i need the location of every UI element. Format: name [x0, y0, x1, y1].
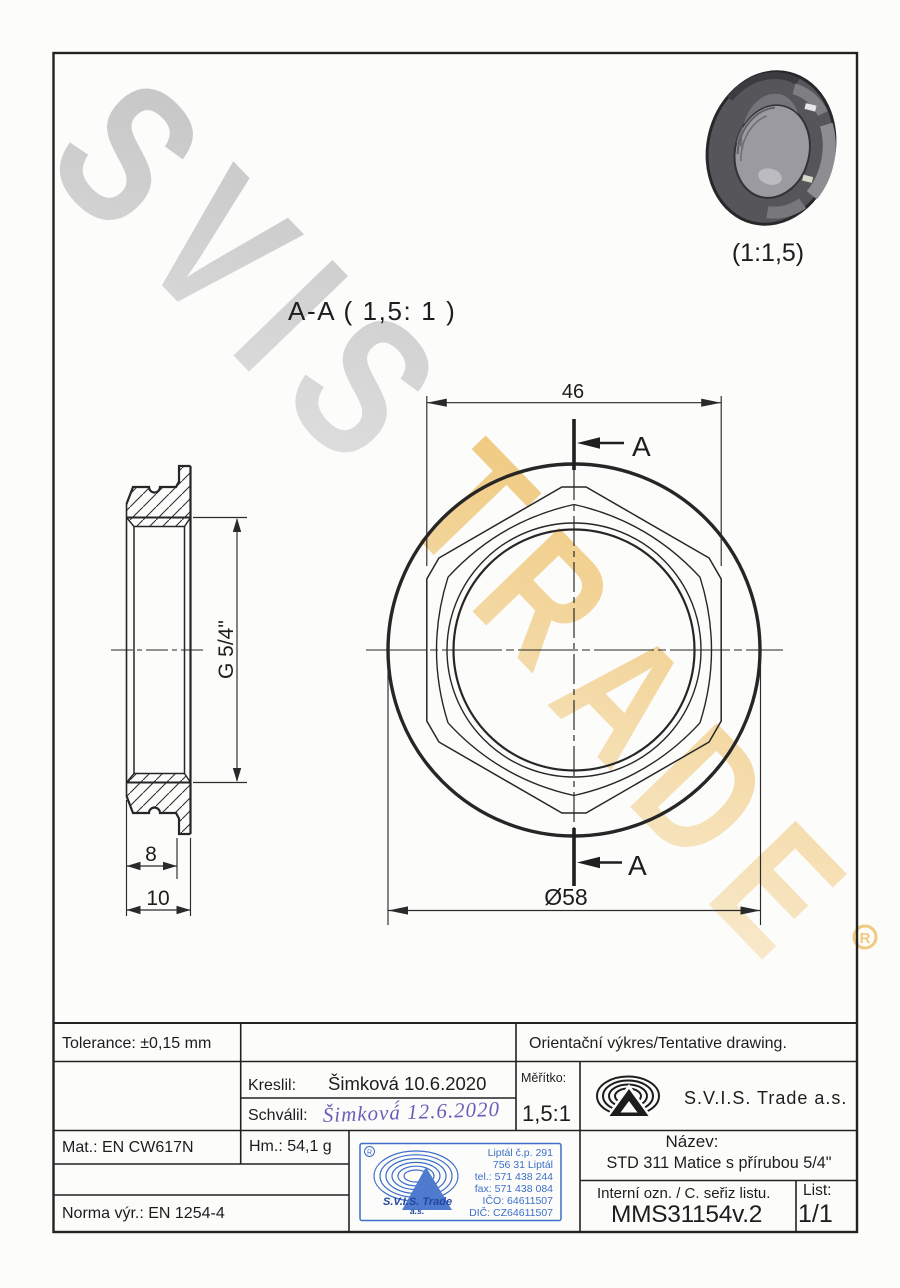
svg-text:Interní ozn. / C. seřiz listu.: Interní ozn. / C. seřiz listu.	[597, 1185, 770, 1202]
svg-text:46: 46	[562, 381, 584, 403]
svg-text:Schválil:: Schválil:	[248, 1107, 308, 1124]
svg-text:1,5:1: 1,5:1	[522, 1101, 571, 1126]
svg-text:fax: 571 438 084: fax: 571 438 084	[475, 1183, 553, 1195]
svg-text:STD 311 Matice s přírubou 5/4": STD 311 Matice s přírubou 5/4"	[607, 1154, 832, 1172]
svg-text:(1:1,5): (1:1,5)	[732, 239, 804, 267]
svg-text:A: A	[628, 850, 647, 881]
svg-text:R: R	[860, 930, 871, 947]
svg-text:DIČ: CZ64611507: DIČ: CZ64611507	[469, 1206, 553, 1219]
svg-text:IČO: 64611507: IČO: 64611507	[483, 1194, 554, 1207]
svg-text:SVIS: SVIS	[10, 34, 497, 526]
svg-text:TRADE: TRADE	[339, 409, 900, 1010]
svg-text:a.s.: a.s.	[410, 1206, 424, 1216]
svg-text:1/1: 1/1	[798, 1200, 833, 1228]
svg-text:8: 8	[145, 843, 157, 866]
svg-text:Liptál č.p. 291: Liptál č.p. 291	[488, 1147, 554, 1159]
svg-text:tel.: 571 438 244: tel.: 571 438 244	[475, 1171, 553, 1183]
svg-text:Šimková 10.6.2020: Šimková 10.6.2020	[328, 1073, 486, 1094]
svg-text:A-A ( 1,5: 1 ): A-A ( 1,5: 1 )	[288, 296, 456, 326]
svg-text:MMS31154v.2: MMS31154v.2	[611, 1201, 762, 1228]
svg-text:Tolerance: ±0,15 mm: Tolerance: ±0,15 mm	[62, 1035, 211, 1052]
svg-text:Norma výr.: EN 1254-4: Norma výr.: EN 1254-4	[62, 1205, 225, 1222]
svg-text:Kreslil:: Kreslil:	[248, 1077, 296, 1094]
svg-text:G 5/4": G 5/4"	[215, 620, 238, 679]
svg-text:Hm.: 54,1 g: Hm.: 54,1 g	[249, 1138, 332, 1155]
svg-text:Název:: Název:	[666, 1132, 719, 1151]
svg-text:Mat.: EN CW617N: Mat.: EN CW617N	[62, 1139, 194, 1156]
svg-text:A: A	[632, 431, 651, 462]
svg-text:List:: List:	[803, 1182, 831, 1199]
svg-text:10: 10	[146, 887, 169, 910]
svg-text:Měřítko:: Měřítko:	[521, 1071, 566, 1085]
svg-text:Ø58: Ø58	[544, 884, 587, 910]
svg-text:S.V.I.S. Trade a.s.: S.V.I.S. Trade a.s.	[684, 1088, 847, 1108]
svg-text:R: R	[367, 1150, 372, 1157]
svg-text:Šimková́ 12.6.2020: Šimková́ 12.6.2020	[322, 1097, 500, 1127]
svg-text:756 31 Liptál: 756 31 Liptál	[493, 1159, 553, 1171]
svg-text:Orientační výkres/Tentative dr: Orientační výkres/Tentative drawing.	[529, 1035, 787, 1052]
